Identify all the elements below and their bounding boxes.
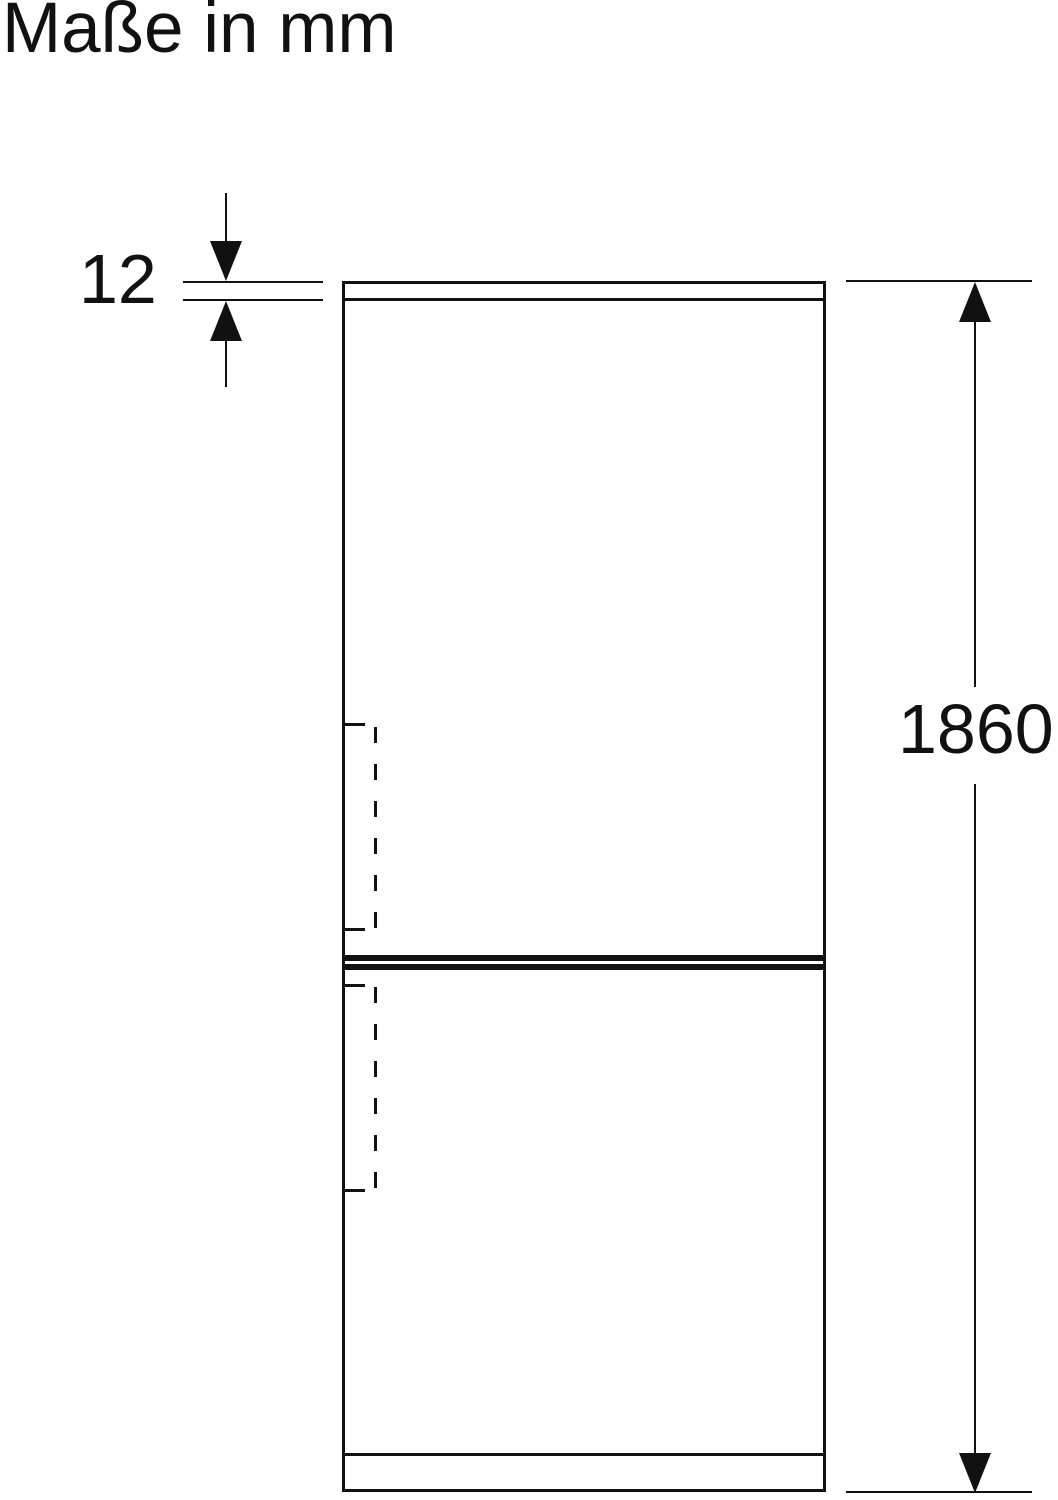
upper-hinge-tick-top <box>345 723 365 726</box>
door-divider-upper-line <box>345 955 823 961</box>
dimension-line-1860-upper <box>974 320 976 687</box>
cabinet-outline <box>342 281 826 1492</box>
dimension-label-12: 12 <box>79 244 157 314</box>
arrowhead-up-icon <box>210 301 242 341</box>
arrowhead-down-icon <box>210 241 242 281</box>
extension-line-panel-top <box>183 281 323 283</box>
dimension-line-1860-lower <box>974 784 976 1453</box>
dimension-line-12-upper <box>225 193 227 243</box>
lower-hinge-dashed-line <box>374 987 377 1192</box>
lower-hinge-tick-top <box>345 984 365 987</box>
extension-line-height-top <box>846 280 1032 282</box>
lower-hinge-tick-bottom <box>345 1189 365 1192</box>
dimension-line-12-lower <box>225 339 227 387</box>
dimension-label-1860: 1860 <box>898 694 1054 764</box>
door-divider-lower-line <box>345 964 823 970</box>
extension-line-panel-bottom <box>183 299 323 301</box>
upper-hinge-tick-bottom <box>345 928 365 931</box>
base-plinth-line <box>345 1453 823 1456</box>
arrowhead-down-icon <box>959 1453 991 1493</box>
top-panel-line <box>345 298 823 301</box>
arrowhead-up-icon <box>959 282 991 322</box>
extension-line-height-bottom <box>846 1491 1032 1493</box>
dimension-diagram: Maße in mm 12 <box>0 0 1058 1500</box>
page-title: Maße in mm <box>2 0 397 75</box>
upper-hinge-dashed-line <box>374 727 377 932</box>
